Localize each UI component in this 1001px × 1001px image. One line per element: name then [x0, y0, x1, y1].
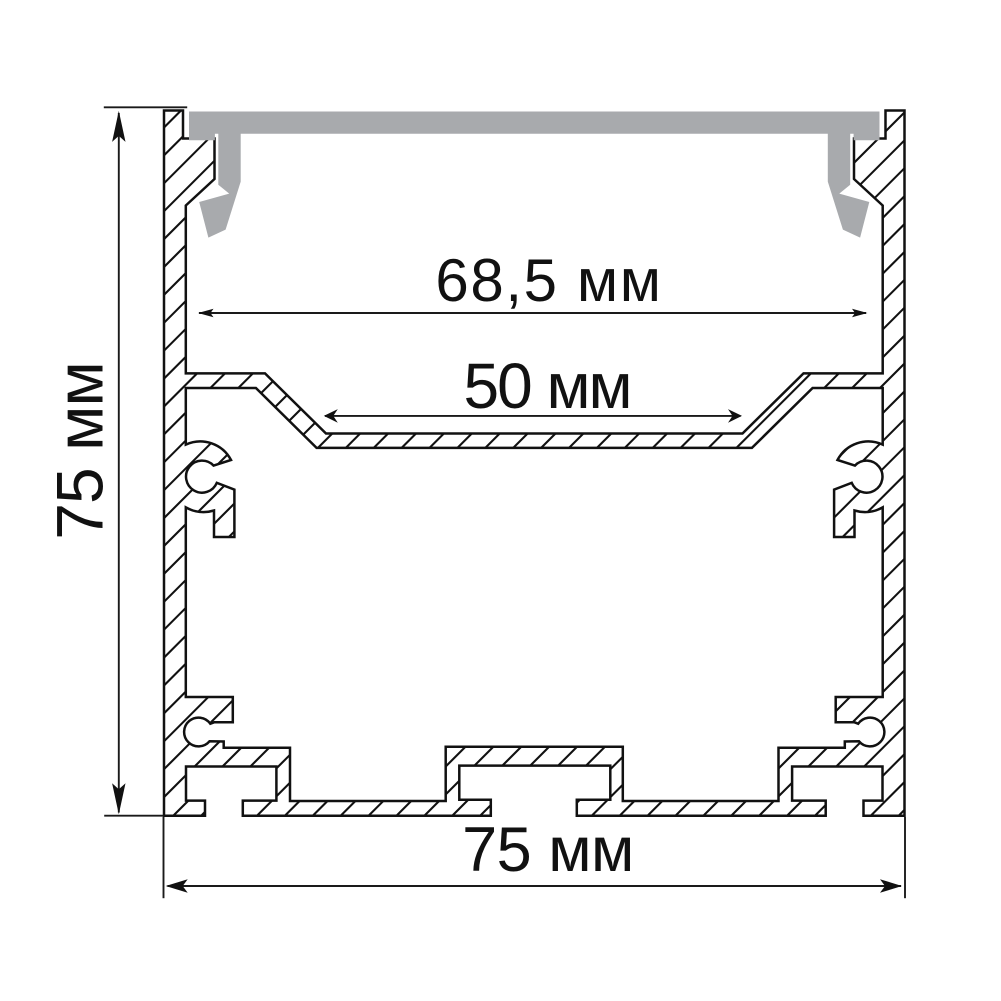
- svg-text:75 мм: 75 мм: [43, 362, 117, 540]
- svg-text:50 мм: 50 мм: [464, 350, 631, 422]
- svg-text:68,5 мм: 68,5 мм: [435, 247, 662, 314]
- svg-text:75 мм: 75 мм: [462, 815, 634, 885]
